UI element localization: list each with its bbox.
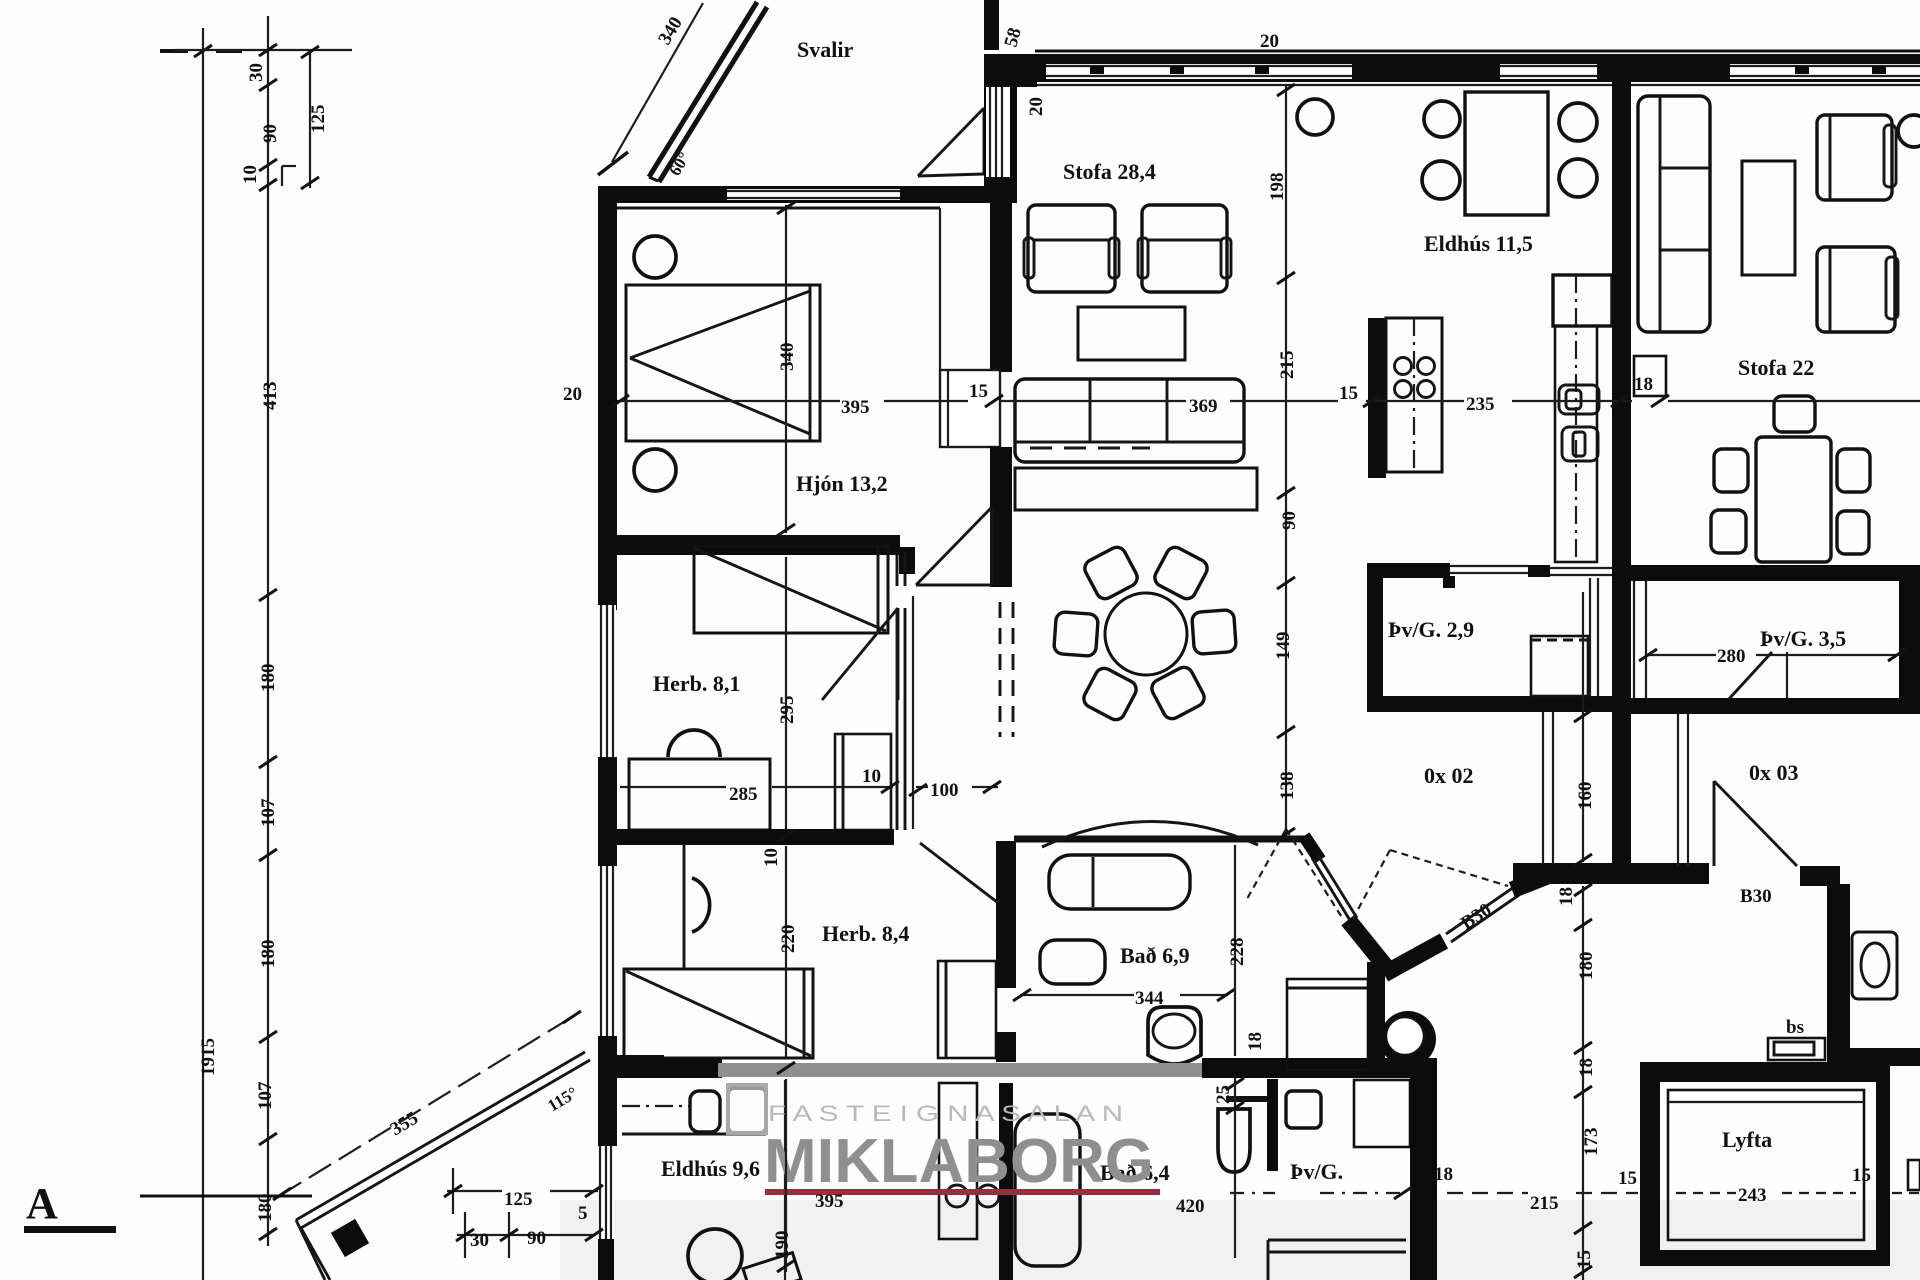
svg-text:125: 125 xyxy=(308,105,329,134)
svg-text:180: 180 xyxy=(258,940,279,969)
svg-text:180: 180 xyxy=(258,664,279,693)
svg-text:215: 215 xyxy=(1530,1193,1559,1214)
svg-text:243: 243 xyxy=(1738,1185,1767,1206)
svg-text:180: 180 xyxy=(1576,952,1597,981)
svg-text:107: 107 xyxy=(258,798,279,827)
svg-text:15: 15 xyxy=(1852,1165,1871,1186)
svg-text:A: A xyxy=(26,1179,58,1228)
svg-text:90: 90 xyxy=(260,124,281,143)
svg-text:Stofa 28,4: Stofa 28,4 xyxy=(1063,159,1156,184)
svg-text:413: 413 xyxy=(260,382,281,411)
svg-text:Herb. 8,1: Herb. 8,1 xyxy=(653,671,740,696)
svg-text:bs: bs xyxy=(1786,1017,1804,1038)
svg-text:MIKLABORG: MIKLABORG xyxy=(764,1127,1154,1196)
svg-text:10: 10 xyxy=(240,165,261,184)
svg-text:180: 180 xyxy=(255,1194,276,1223)
svg-text:0x 02: 0x 02 xyxy=(1424,763,1474,788)
svg-text:235: 235 xyxy=(1466,394,1495,415)
svg-text:Eldhús 9,6: Eldhús 9,6 xyxy=(661,1156,760,1181)
svg-text:420: 420 xyxy=(1176,1196,1205,1217)
svg-text:5: 5 xyxy=(578,1203,588,1224)
svg-text:20: 20 xyxy=(563,384,582,405)
svg-text:20: 20 xyxy=(1260,31,1279,52)
svg-text:Svalir: Svalir xyxy=(797,37,853,62)
svg-text:190: 190 xyxy=(772,1231,793,1260)
svg-text:25: 25 xyxy=(1213,1085,1234,1104)
svg-text:228: 228 xyxy=(1227,938,1248,967)
svg-text:90: 90 xyxy=(1279,511,1300,530)
svg-text:B30: B30 xyxy=(1740,886,1772,907)
svg-text:10: 10 xyxy=(862,766,881,787)
svg-text:Þv/G. 2,9: Þv/G. 2,9 xyxy=(1388,617,1474,642)
svg-text:30: 30 xyxy=(470,1230,489,1251)
svg-text:18: 18 xyxy=(1556,887,1577,906)
svg-text:18: 18 xyxy=(1245,1032,1266,1051)
svg-text:0x 03: 0x 03 xyxy=(1749,760,1799,785)
svg-text:340: 340 xyxy=(777,343,798,372)
svg-text:138: 138 xyxy=(1277,772,1298,801)
svg-text:15: 15 xyxy=(1618,1168,1637,1189)
svg-text:18: 18 xyxy=(1634,374,1653,395)
svg-text:15: 15 xyxy=(969,381,988,402)
svg-text:285: 285 xyxy=(729,784,758,805)
svg-text:280: 280 xyxy=(1717,646,1746,667)
svg-text:Bað 6,9: Bað 6,9 xyxy=(1120,943,1190,968)
svg-text:10: 10 xyxy=(761,848,782,867)
svg-text:Stofa 22: Stofa 22 xyxy=(1738,355,1814,380)
svg-text:107: 107 xyxy=(255,1081,276,1110)
svg-text:395: 395 xyxy=(841,397,870,418)
svg-text:160: 160 xyxy=(1575,782,1596,811)
svg-text:15: 15 xyxy=(1339,383,1358,404)
svg-text:Herb. 8,4: Herb. 8,4 xyxy=(822,921,909,946)
svg-text:F A S T E I G N A S A L A N: F A S T E I G N A S A L A N xyxy=(768,1101,1123,1126)
svg-text:Þv/G.: Þv/G. xyxy=(1290,1159,1343,1184)
svg-text:15: 15 xyxy=(1574,1250,1595,1269)
svg-text:Hjón 13,2: Hjón 13,2 xyxy=(796,471,888,496)
svg-text:220: 220 xyxy=(778,925,799,954)
svg-text:149: 149 xyxy=(1273,632,1294,661)
svg-text:215: 215 xyxy=(1277,351,1298,380)
svg-text:173: 173 xyxy=(1581,1128,1602,1157)
svg-text:18: 18 xyxy=(1434,1164,1453,1185)
svg-text:Lyfta: Lyfta xyxy=(1722,1127,1772,1152)
svg-text:30: 30 xyxy=(246,63,267,82)
svg-text:90: 90 xyxy=(527,1228,546,1249)
svg-text:344: 344 xyxy=(1135,988,1164,1009)
svg-text:1915: 1915 xyxy=(198,1038,219,1076)
svg-text:Eldhús 11,5: Eldhús 11,5 xyxy=(1424,231,1533,256)
svg-text:18: 18 xyxy=(1576,1058,1597,1077)
svg-text:395: 395 xyxy=(815,1191,844,1212)
svg-text:369: 369 xyxy=(1189,396,1218,417)
svg-text:198: 198 xyxy=(1267,173,1288,202)
svg-text:125: 125 xyxy=(504,1189,533,1210)
svg-text:Þv/G. 3,5: Þv/G. 3,5 xyxy=(1760,626,1846,651)
svg-text:20: 20 xyxy=(1026,97,1047,116)
svg-text:100: 100 xyxy=(930,780,959,801)
svg-text:295: 295 xyxy=(777,696,798,725)
